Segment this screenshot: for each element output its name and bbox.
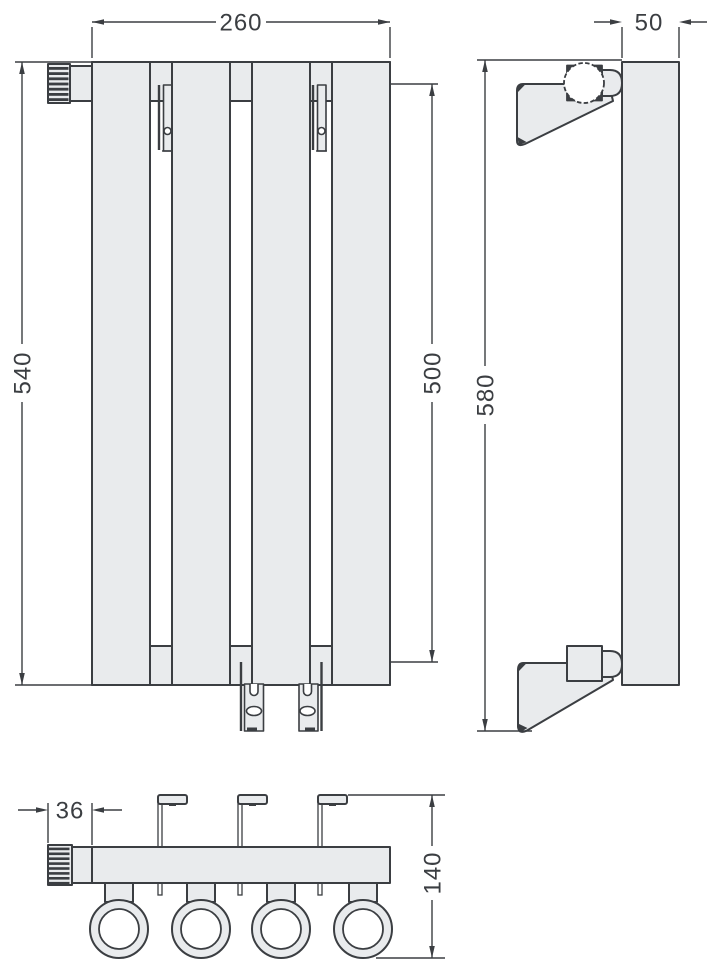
side-view: 50 580 (473, 10, 707, 733)
bracket-square (567, 646, 602, 681)
front-panel-4 (332, 62, 390, 685)
tube-inner (181, 909, 221, 949)
front-panel-3 (252, 62, 310, 685)
dim-valve-36: 36 (18, 798, 122, 845)
valve-connector (602, 651, 622, 677)
bracket-hole (164, 128, 171, 135)
hook-cap-tick (169, 804, 176, 807)
valve-knob-circle (564, 63, 604, 103)
bracket-u-notch (304, 684, 312, 696)
valve-body (72, 847, 92, 883)
dim-label-depth: 50 (635, 10, 664, 37)
bottom-view-hook-caps (158, 795, 347, 806)
valve-connector (602, 70, 622, 96)
bottom-valve-head (48, 845, 92, 885)
bracket-plate (318, 85, 327, 151)
dim-height-580: 580 (473, 60, 622, 731)
front-view: 260 540 500 (10, 10, 447, 731)
bracket-plate (164, 85, 173, 151)
front-panel-2 (172, 62, 230, 685)
hook-cap-tick (329, 804, 336, 807)
tube-rings (90, 900, 392, 958)
dim-label-connection-span: 500 (420, 351, 447, 394)
bracket-slot (300, 707, 315, 716)
tube-inner (261, 909, 301, 949)
bracket-foot (305, 728, 315, 731)
dim-label-depth-overall: 140 (420, 851, 447, 894)
side-bottom-bracket (518, 646, 622, 733)
dim-connections-500: 500 (390, 84, 447, 662)
valve-body (70, 66, 92, 101)
dim-label-width: 260 (219, 10, 262, 37)
bottom-view: 36 140 (18, 795, 447, 958)
dim-width-260: 260 (92, 10, 390, 58)
tube-inner (343, 909, 383, 949)
bracket-u-notch (250, 684, 258, 696)
radiator-dimension-drawing: 260 540 500 (0, 0, 719, 970)
bracket-foot (247, 728, 257, 731)
tube-inner (99, 909, 139, 949)
bracket-hole (318, 128, 325, 135)
dim-label-side-height: 580 (473, 373, 500, 416)
dim-label-valve-offset: 36 (56, 798, 85, 825)
dim-depth-50: 50 (594, 10, 707, 58)
dim-label-height: 540 (10, 351, 37, 394)
front-panel-1 (92, 62, 150, 685)
side-top-bracket (517, 63, 622, 146)
hook-cap (238, 795, 267, 804)
dim-height-540: 540 (10, 62, 92, 685)
front-valve-head (48, 64, 92, 103)
bracket-slot (247, 707, 262, 716)
side-panel (622, 62, 679, 685)
hook-cap-tick (249, 804, 256, 807)
hook-cap (318, 795, 347, 804)
drawing-canvas: 260 540 500 (0, 0, 719, 970)
hook-cap (158, 795, 187, 804)
bottom-manifold-bar (92, 847, 390, 883)
